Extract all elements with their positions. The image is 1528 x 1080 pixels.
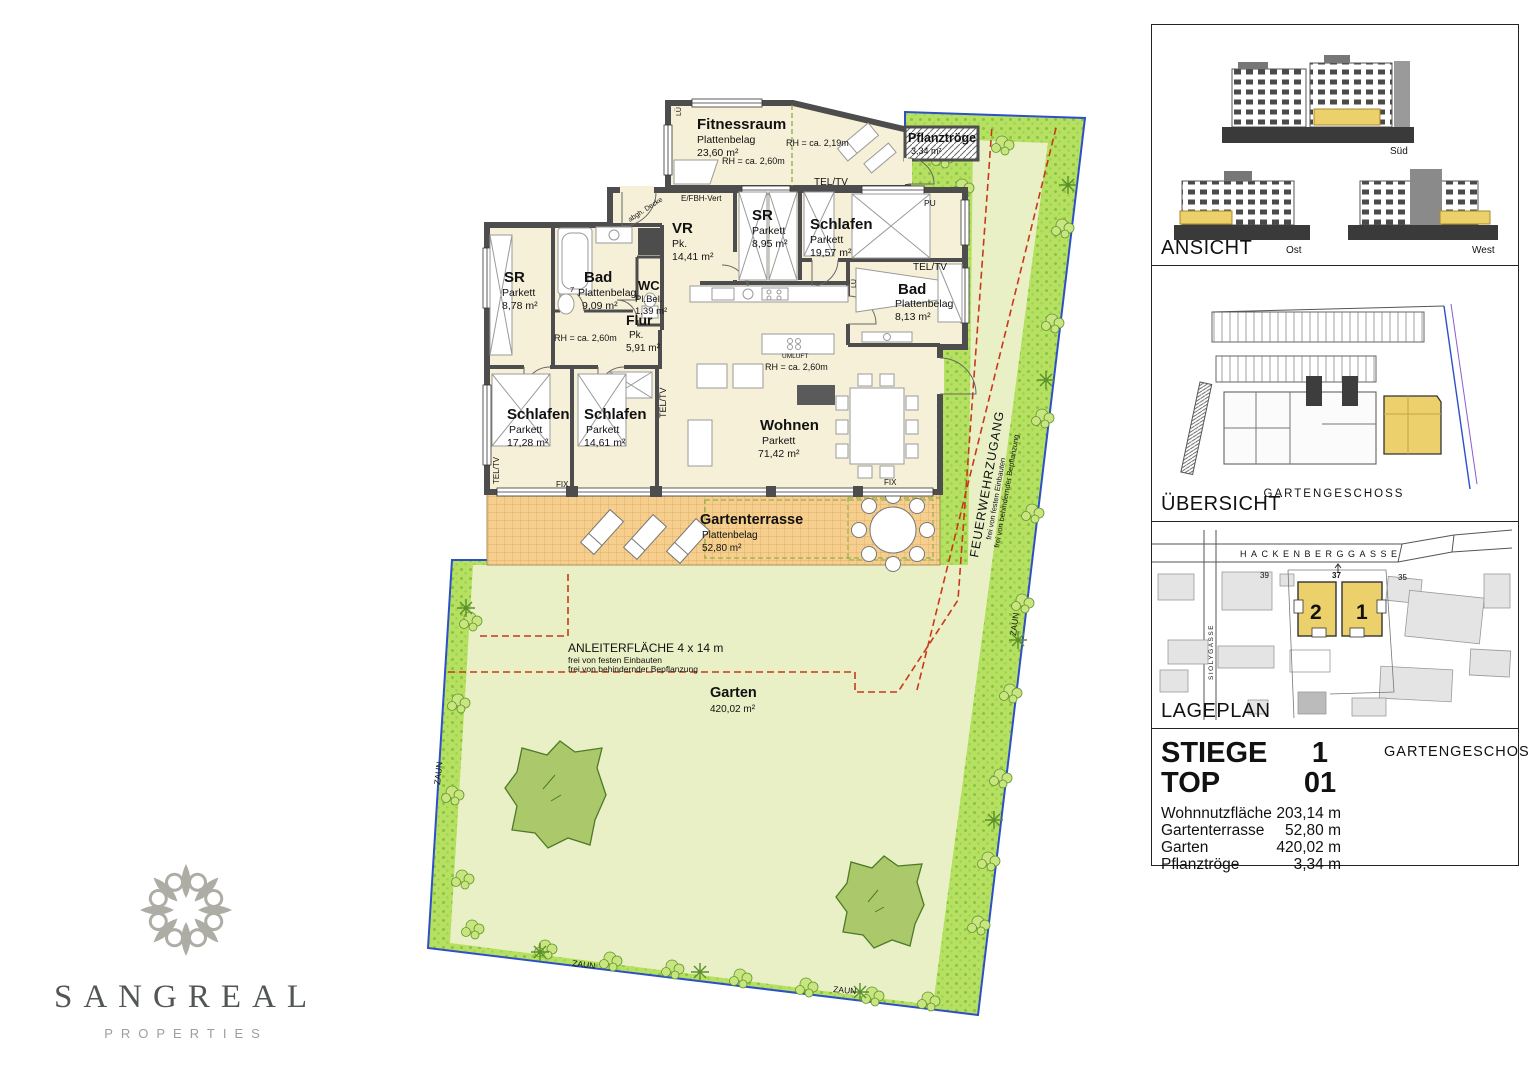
street-side: SIOLYGASSE [1208,624,1215,680]
svg-text:Schlafen: Schlafen [810,216,873,233]
info-row-gartenterrasse: Gartenterrasse 52,80 m [1161,822,1341,840]
svg-text:TEL/TV: TEL/TV [492,456,501,484]
terrace-name: Gartenterrasse [700,512,803,528]
elevation-ost-label: Ost [1286,245,1302,256]
svg-text:Parkett: Parkett [509,424,542,436]
elevation-sued: Süd [1222,55,1414,157]
garden-table [852,489,935,572]
svg-text:Parkett: Parkett [752,225,785,237]
svg-text:SR: SR [504,269,525,286]
panel-ansicht: Süd Ost West ANSICHT [1151,24,1519,266]
stiege-label: STIEGE [1161,737,1267,770]
elevation-sued-label: Süd [1390,146,1408,157]
planter-area: 3,34 m² [911,146,942,156]
terrace-area: 52,80 m² [702,543,742,554]
garden-name: Garten [710,685,757,701]
info-row-pflanztroege: Pflanztröge 3,34 m [1161,856,1341,874]
svg-text:LÜ: LÜ [675,107,683,116]
svg-text:TEL/TV: TEL/TV [913,262,947,273]
info-row-garten: Garten 420,02 m [1161,839,1341,857]
planter-box: Pflanztröge 3,34 m² [905,127,978,160]
svg-text:Parkett: Parkett [762,435,795,447]
svg-text:5,91 m²: 5,91 m² [626,343,661,354]
lageplan-label: LAGEPLAN [1161,700,1271,723]
floorplan-sheet: ANLEITERFLÄCHE 4 x 14 m frei von festen … [0,0,1528,1080]
overview-drawing: GARTENGESCHOSS [1152,266,1517,521]
uebersicht-caption: GARTENGESCHOSS [1264,488,1405,500]
subject-buildings: 2 1 [1294,582,1386,637]
svg-text:Schlafen: Schlafen [584,406,647,423]
svg-text:14,61 m²: 14,61 m² [584,437,626,449]
panel-lageplan: HACKENBERGGASSE SIOLYGASSE [1151,521,1519,729]
haus2-number: 2 [1310,601,1322,624]
geschoss-caption: GARTENGESCHOSS [1384,744,1528,760]
svg-text:14,41 m²: 14,41 m² [672,251,714,263]
svg-text:17,28 m²: 17,28 m² [507,437,549,449]
anleiter-line3: frei von behindernder Bepflanzung [568,664,698,674]
brand-tagline: PROPERTIES [28,1026,344,1041]
house-nr-35: 35 [1398,573,1407,582]
svg-text:Plattenbelag: Plattenbelag [895,298,954,310]
svg-text:SR: SR [752,207,773,224]
brand-name: SANGREAL [28,979,344,1016]
svg-text:RH = ca. 2,60m: RH = ca. 2,60m [554,333,617,343]
elevation-west-label: West [1472,245,1495,256]
anleiter-title: ANLEITERFLÄCHE 4 x 14 m [568,641,723,655]
haus1-number: 1 [1356,601,1368,624]
svg-text:8,13 m²: 8,13 m² [895,311,931,323]
top-value: 01 [1292,767,1348,800]
svg-text:RH = ca. 2,60m: RH = ca. 2,60m [765,362,828,372]
info-row-wohnnutzflaeche: Wohnnutzfläche 203,14 m [1161,805,1341,823]
svg-text:Plattenbelag: Plattenbelag [578,287,637,299]
svg-text:Schlafen: Schlafen [507,406,570,423]
panel-unit-info: STIEGE 1 GARTENGESCHOSS TOP 01 Wohnnutzf… [1151,728,1519,866]
uebersicht-label: ÜBERSICHT [1161,493,1281,516]
house-nr-39: 39 [1260,571,1269,580]
svg-text:7: 7 [570,285,574,294]
svg-text:LÜ: LÜ [850,279,858,288]
svg-text:PU: PU [924,198,936,208]
svg-text:9,09 m²: 9,09 m² [582,300,618,312]
street-main: HACKENBERGGASSE [1240,549,1402,559]
planter-name: Pflanztröge [908,131,976,145]
svg-text:Wohnen: Wohnen [760,417,819,434]
svg-text:Parkett: Parkett [586,424,619,436]
stiege-value: 1 [1292,737,1348,770]
terrace-finish: Plattenbelag [702,530,758,541]
svg-text:Pl.Bel.: Pl.Bel. [635,294,662,305]
svg-text:Bad: Bad [584,269,612,286]
svg-text:RH = ca. 2,19m: RH = ca. 2,19m [786,138,849,148]
svg-text:Flur: Flur [626,312,653,328]
svg-text:Pk.: Pk. [629,330,643,341]
svg-text:Pk.: Pk. [672,238,687,250]
garden-terrace: Gartenterrasse Plattenbelag 52,80 m² [487,489,940,572]
svg-text:71,42 m²: 71,42 m² [758,448,800,460]
logo-rosette-icon [128,852,244,968]
svg-text:UMLUFT: UMLUFT [782,353,808,360]
svg-text:Plattenbelag: Plattenbelag [697,134,756,146]
svg-text:WC: WC [638,278,660,293]
svg-text:E/FBH-Vert: E/FBH-Vert [681,194,722,203]
panel-uebersicht: GARTENGESCHOSS ÜBERSICHT [1151,265,1519,522]
elevation-west: West [1348,169,1498,256]
svg-text:8,95 m²: 8,95 m² [752,238,788,250]
svg-text:Parkett: Parkett [502,287,535,299]
svg-text:ZAUN: ZAUN [572,958,596,971]
svg-text:Fitnessraum: Fitnessraum [697,116,786,133]
svg-text:FIX: FIX [884,478,897,487]
svg-text:ZAUN: ZAUN [833,984,857,996]
svg-text:TEL/TV: TEL/TV [658,387,668,418]
svg-text:8,78 m²: 8,78 m² [502,300,538,312]
svg-text:RH = ca. 2,60m: RH = ca. 2,60m [722,156,785,166]
svg-text:Parkett: Parkett [810,234,843,246]
site-plan-drawing: HACKENBERGGASSE SIOLYGASSE [1152,522,1517,728]
apartment-building: Pflanztröge 3,34 m² [483,99,978,497]
svg-text:TEL/TV: TEL/TV [814,177,848,188]
top-label: TOP [1161,767,1220,800]
ansicht-label: ANSICHT [1161,237,1252,260]
garden-area-value: 420,02 m² [710,704,756,715]
svg-text:19,57 m²: 19,57 m² [810,247,852,259]
elevation-drawings: Süd Ost West [1152,25,1517,265]
svg-text:Bad: Bad [898,281,926,298]
house-nr-37: 37 [1332,571,1341,580]
svg-text:VR: VR [672,220,693,237]
company-logo: SANGREAL PROPERTIES [28,852,344,1041]
svg-text:FIX: FIX [556,480,569,489]
